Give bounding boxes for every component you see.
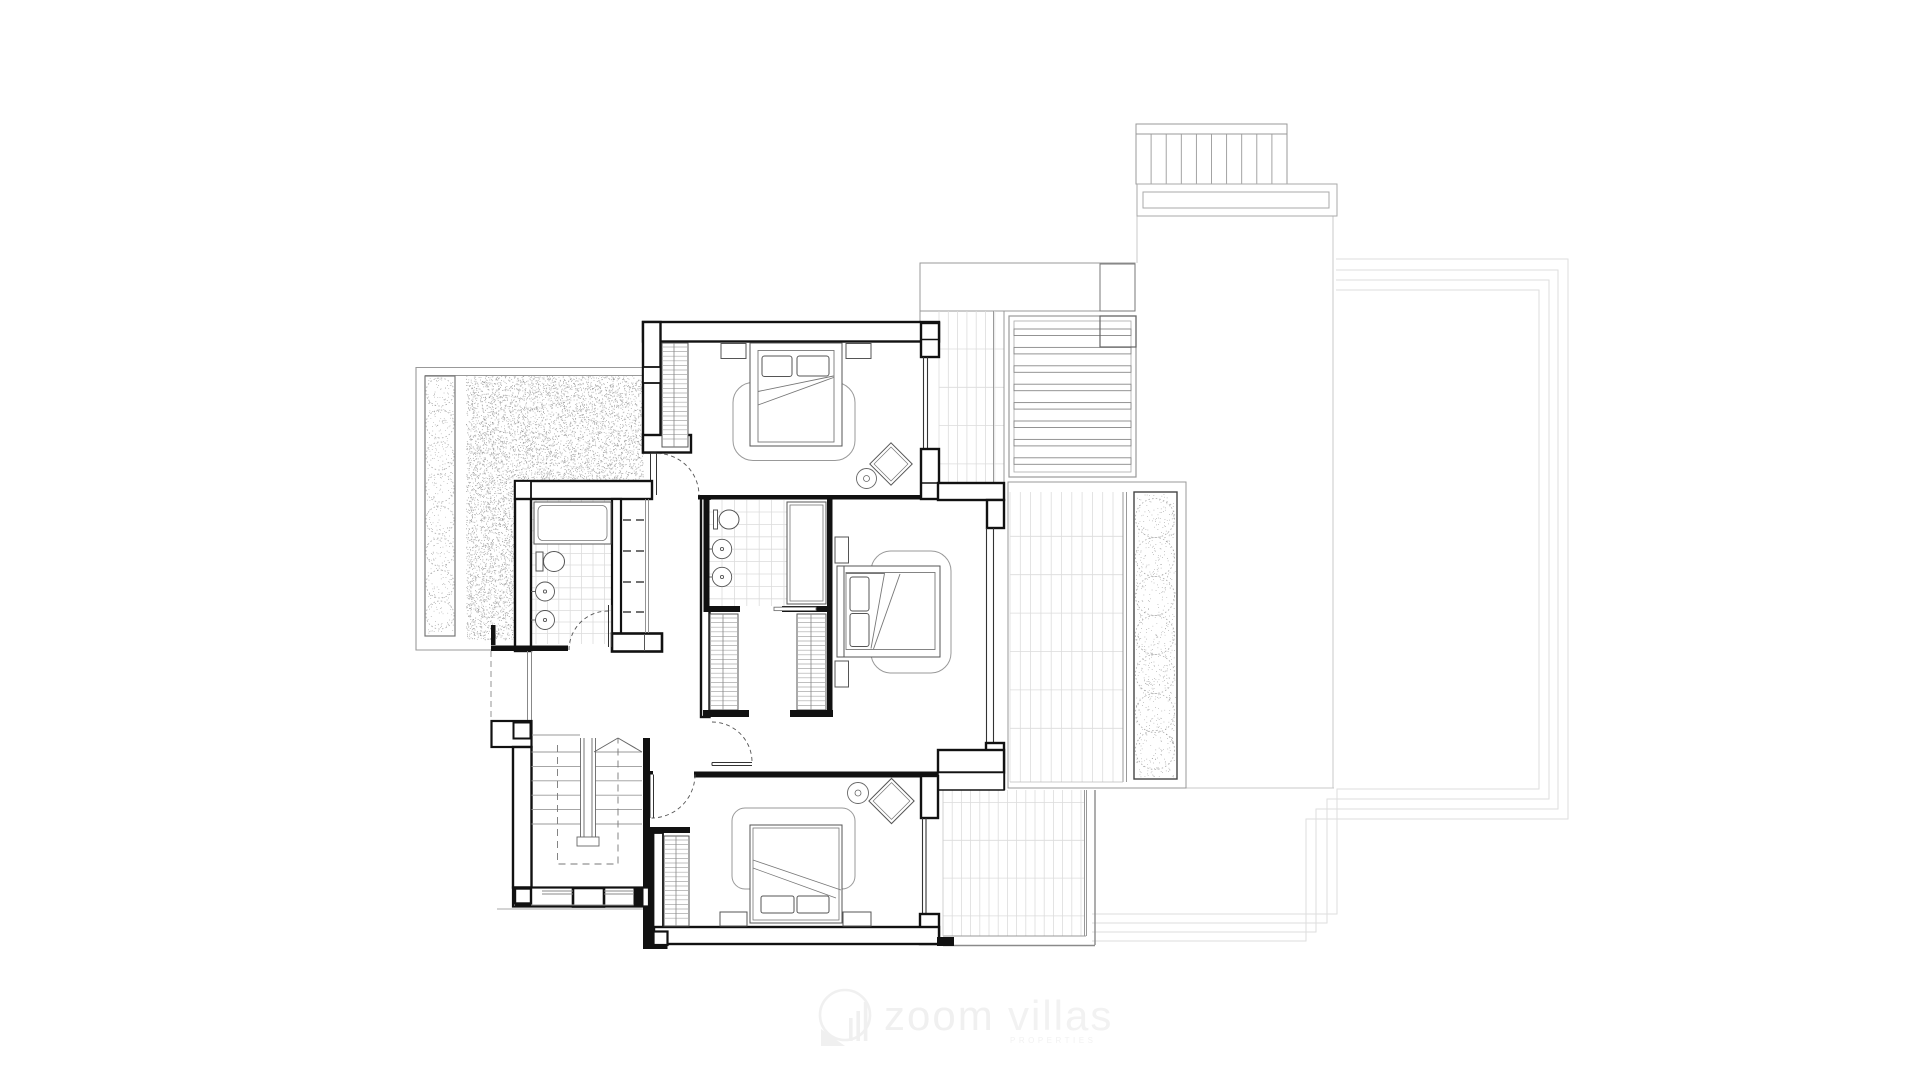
svg-text:villas: villas [1008, 992, 1113, 1039]
svg-text:PROPERTIES: PROPERTIES [1010, 1036, 1096, 1045]
svg-text:zoom: zoom [884, 992, 995, 1039]
